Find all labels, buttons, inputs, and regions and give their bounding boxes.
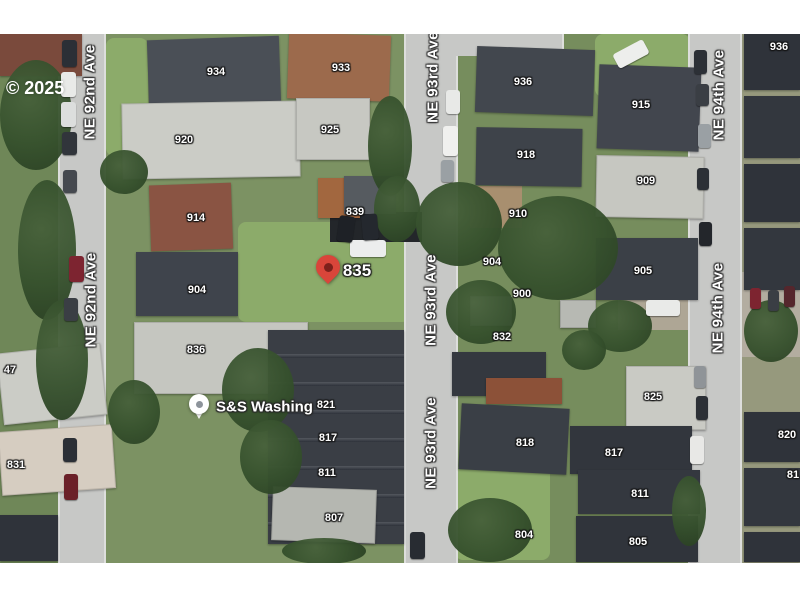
house-number-label: 904	[188, 284, 206, 296]
street-name-label: NE 94th Ave	[710, 263, 727, 354]
street-name-label: NE 92nd Ave	[83, 253, 100, 348]
tree-canopy	[672, 476, 706, 546]
house-number-label: 933	[332, 62, 350, 74]
house-number-label: 934	[207, 66, 225, 78]
house-number-label: 904	[483, 256, 501, 268]
car	[64, 474, 78, 500]
house-number-label: 81	[787, 469, 799, 481]
building-roof	[570, 426, 692, 474]
poi-name-label[interactable]: S&S Washing	[216, 399, 313, 416]
car	[784, 286, 795, 307]
house-number-label: 807	[325, 512, 343, 524]
house-number-label: 936	[514, 76, 532, 88]
car	[646, 300, 680, 316]
house-number-label: 918	[517, 149, 535, 161]
building-roof	[744, 532, 800, 562]
car	[699, 222, 712, 246]
tree-canopy	[240, 420, 302, 494]
car	[64, 298, 78, 321]
tree-canopy	[374, 176, 420, 242]
car	[750, 288, 761, 309]
house-number-label: 805	[629, 536, 647, 548]
letterbox-bottom	[0, 563, 800, 600]
house-number-label: 825	[644, 391, 662, 403]
letterbox-top	[0, 0, 800, 34]
house-number-label: 821	[317, 399, 335, 411]
house-number-label: 47	[4, 364, 16, 376]
tree-canopy	[562, 330, 606, 370]
listing-photo: © 2025 835 S&S Washing NE 92nd AveNE 92n…	[0, 0, 800, 600]
house-number-label: 804	[515, 529, 533, 541]
house-number-label: 811	[631, 488, 649, 500]
car	[350, 240, 386, 257]
poi-marker-icon[interactable]	[189, 394, 211, 422]
house-number-label: 909	[637, 175, 655, 187]
house-number-label: 836	[187, 344, 205, 356]
car	[62, 40, 77, 67]
tree-canopy	[222, 348, 294, 432]
car	[63, 170, 77, 193]
street-name-label: NE 92nd Ave	[82, 45, 99, 140]
car	[690, 436, 704, 464]
house-number-label: 900	[513, 288, 531, 300]
house-number-label: 915	[632, 99, 650, 111]
map-pin-icon[interactable]	[315, 255, 341, 291]
building-roof	[744, 164, 800, 222]
tree-canopy	[100, 150, 148, 194]
building-roof	[486, 378, 562, 404]
street-name-label: NE 93rd Ave	[423, 397, 440, 489]
house-number-label: 910	[509, 208, 527, 220]
building-roof	[744, 96, 800, 158]
satellite-map[interactable]: © 2025 835 S&S Washing NE 92nd AveNE 92n…	[0, 34, 800, 563]
house-number-label: 920	[175, 134, 193, 146]
house-number-label: 817	[319, 432, 337, 444]
tree-canopy	[36, 300, 88, 420]
car	[696, 396, 708, 420]
house-number-label: 818	[516, 437, 534, 449]
pin-dot	[324, 263, 333, 272]
car	[443, 126, 458, 156]
car	[63, 438, 77, 462]
car	[694, 366, 706, 388]
street-name-label: NE 93rd Ave	[423, 254, 440, 346]
building-roof	[744, 228, 800, 290]
building-roof	[121, 100, 300, 179]
house-number-label: 811	[318, 467, 336, 479]
car	[62, 132, 77, 155]
car	[768, 290, 779, 311]
house-number-label: 831	[7, 459, 25, 471]
car	[410, 532, 425, 559]
house-number-label: 832	[493, 331, 511, 343]
house-number-label: 839	[346, 206, 364, 218]
tree-canopy	[282, 538, 366, 563]
poi-marker-dot	[196, 401, 203, 408]
street-name-label: NE 94th Ave	[711, 50, 728, 141]
building-roof	[595, 155, 704, 219]
street-name-label: NE 93rd Ave	[425, 34, 442, 123]
tree-canopy	[108, 380, 160, 444]
car	[441, 160, 454, 182]
house-number-label: 820	[778, 429, 796, 441]
car	[697, 168, 709, 190]
copyright-watermark: © 2025	[6, 78, 64, 99]
car	[61, 102, 76, 127]
house-number-label: 905	[634, 265, 652, 277]
building-roof	[458, 403, 569, 475]
car	[696, 84, 709, 106]
house-number-label: 936	[770, 41, 788, 53]
house-number-label: 817	[605, 447, 623, 459]
car	[694, 50, 707, 74]
building-roof	[0, 515, 58, 561]
house-number-label: 914	[187, 212, 205, 224]
car	[446, 90, 460, 114]
car	[698, 124, 711, 148]
house-number-label: 925	[321, 124, 339, 136]
pin-address-label: 835	[343, 261, 371, 281]
building-roof	[475, 46, 595, 116]
